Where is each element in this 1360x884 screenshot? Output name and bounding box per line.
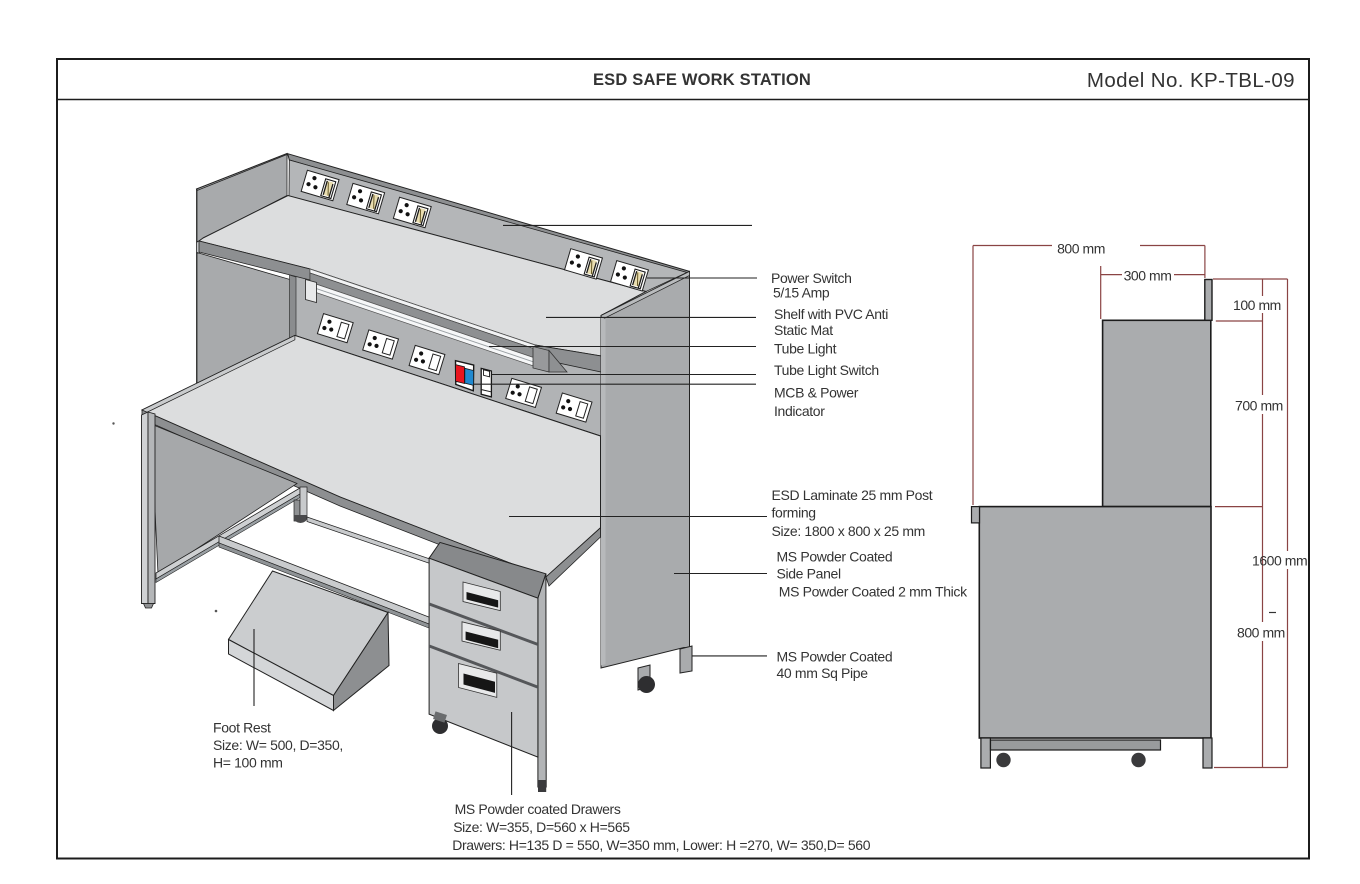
svg-text:Drawers: H=135 D = 550, W=350: Drawers: H=135 D = 550, W=350 mm, Lower:… — [452, 837, 871, 853]
svg-text:700 mm: 700 mm — [1235, 398, 1283, 414]
svg-text:MS Powder Coated 2 mm Thick: MS Powder Coated 2 mm Thick — [779, 584, 968, 600]
svg-text:1600 mm: 1600 mm — [1252, 553, 1307, 569]
svg-text:Size: W=355, D=560 x H=565: Size: W=355, D=560 x H=565 — [453, 819, 630, 835]
svg-text:Static Mat: Static Mat — [774, 322, 833, 338]
svg-text:Tube Light Switch: Tube Light Switch — [774, 362, 879, 378]
svg-text:5/15 Amp: 5/15 Amp — [773, 285, 830, 301]
svg-text:MS Powder Coated: MS Powder Coated — [777, 549, 893, 565]
svg-text:MCB & Power: MCB & Power — [774, 385, 859, 401]
svg-text:ESD Laminate 25 mm Post: ESD Laminate 25 mm Post — [772, 487, 933, 503]
svg-text:Shelf with PVC Anti: Shelf with PVC Anti — [774, 306, 888, 322]
svg-text:Size: W= 500, D=350,: Size: W= 500, D=350, — [213, 737, 343, 753]
svg-text:Tube Light: Tube Light — [774, 341, 837, 357]
svg-text:H= 100 mm: H= 100 mm — [213, 755, 283, 771]
svg-text:MS Powder Coated: MS Powder Coated — [777, 649, 893, 665]
svg-text:Side Panel: Side Panel — [777, 566, 841, 582]
svg-text:800 mm: 800 mm — [1237, 624, 1285, 640]
svg-text:800 mm: 800 mm — [1057, 241, 1105, 257]
svg-text:forming: forming — [772, 505, 816, 521]
svg-text:ESD SAFE WORK STATION: ESD SAFE WORK STATION — [593, 71, 811, 89]
svg-text:300 mm: 300 mm — [1124, 268, 1172, 284]
svg-text:Foot Rest: Foot Rest — [213, 720, 271, 736]
svg-text:Size: 1800 x 800 x 25 mm: Size: 1800 x 800 x 25 mm — [772, 523, 925, 539]
svg-text:40 mm Sq Pipe: 40 mm Sq Pipe — [777, 665, 869, 681]
svg-text:MS Powder coated Drawers: MS Powder coated Drawers — [455, 801, 621, 817]
svg-text:Model No. KP-TBL-09: Model No. KP-TBL-09 — [1087, 69, 1295, 92]
svg-text:Indicator: Indicator — [774, 403, 825, 419]
svg-text:100 mm: 100 mm — [1233, 297, 1281, 313]
